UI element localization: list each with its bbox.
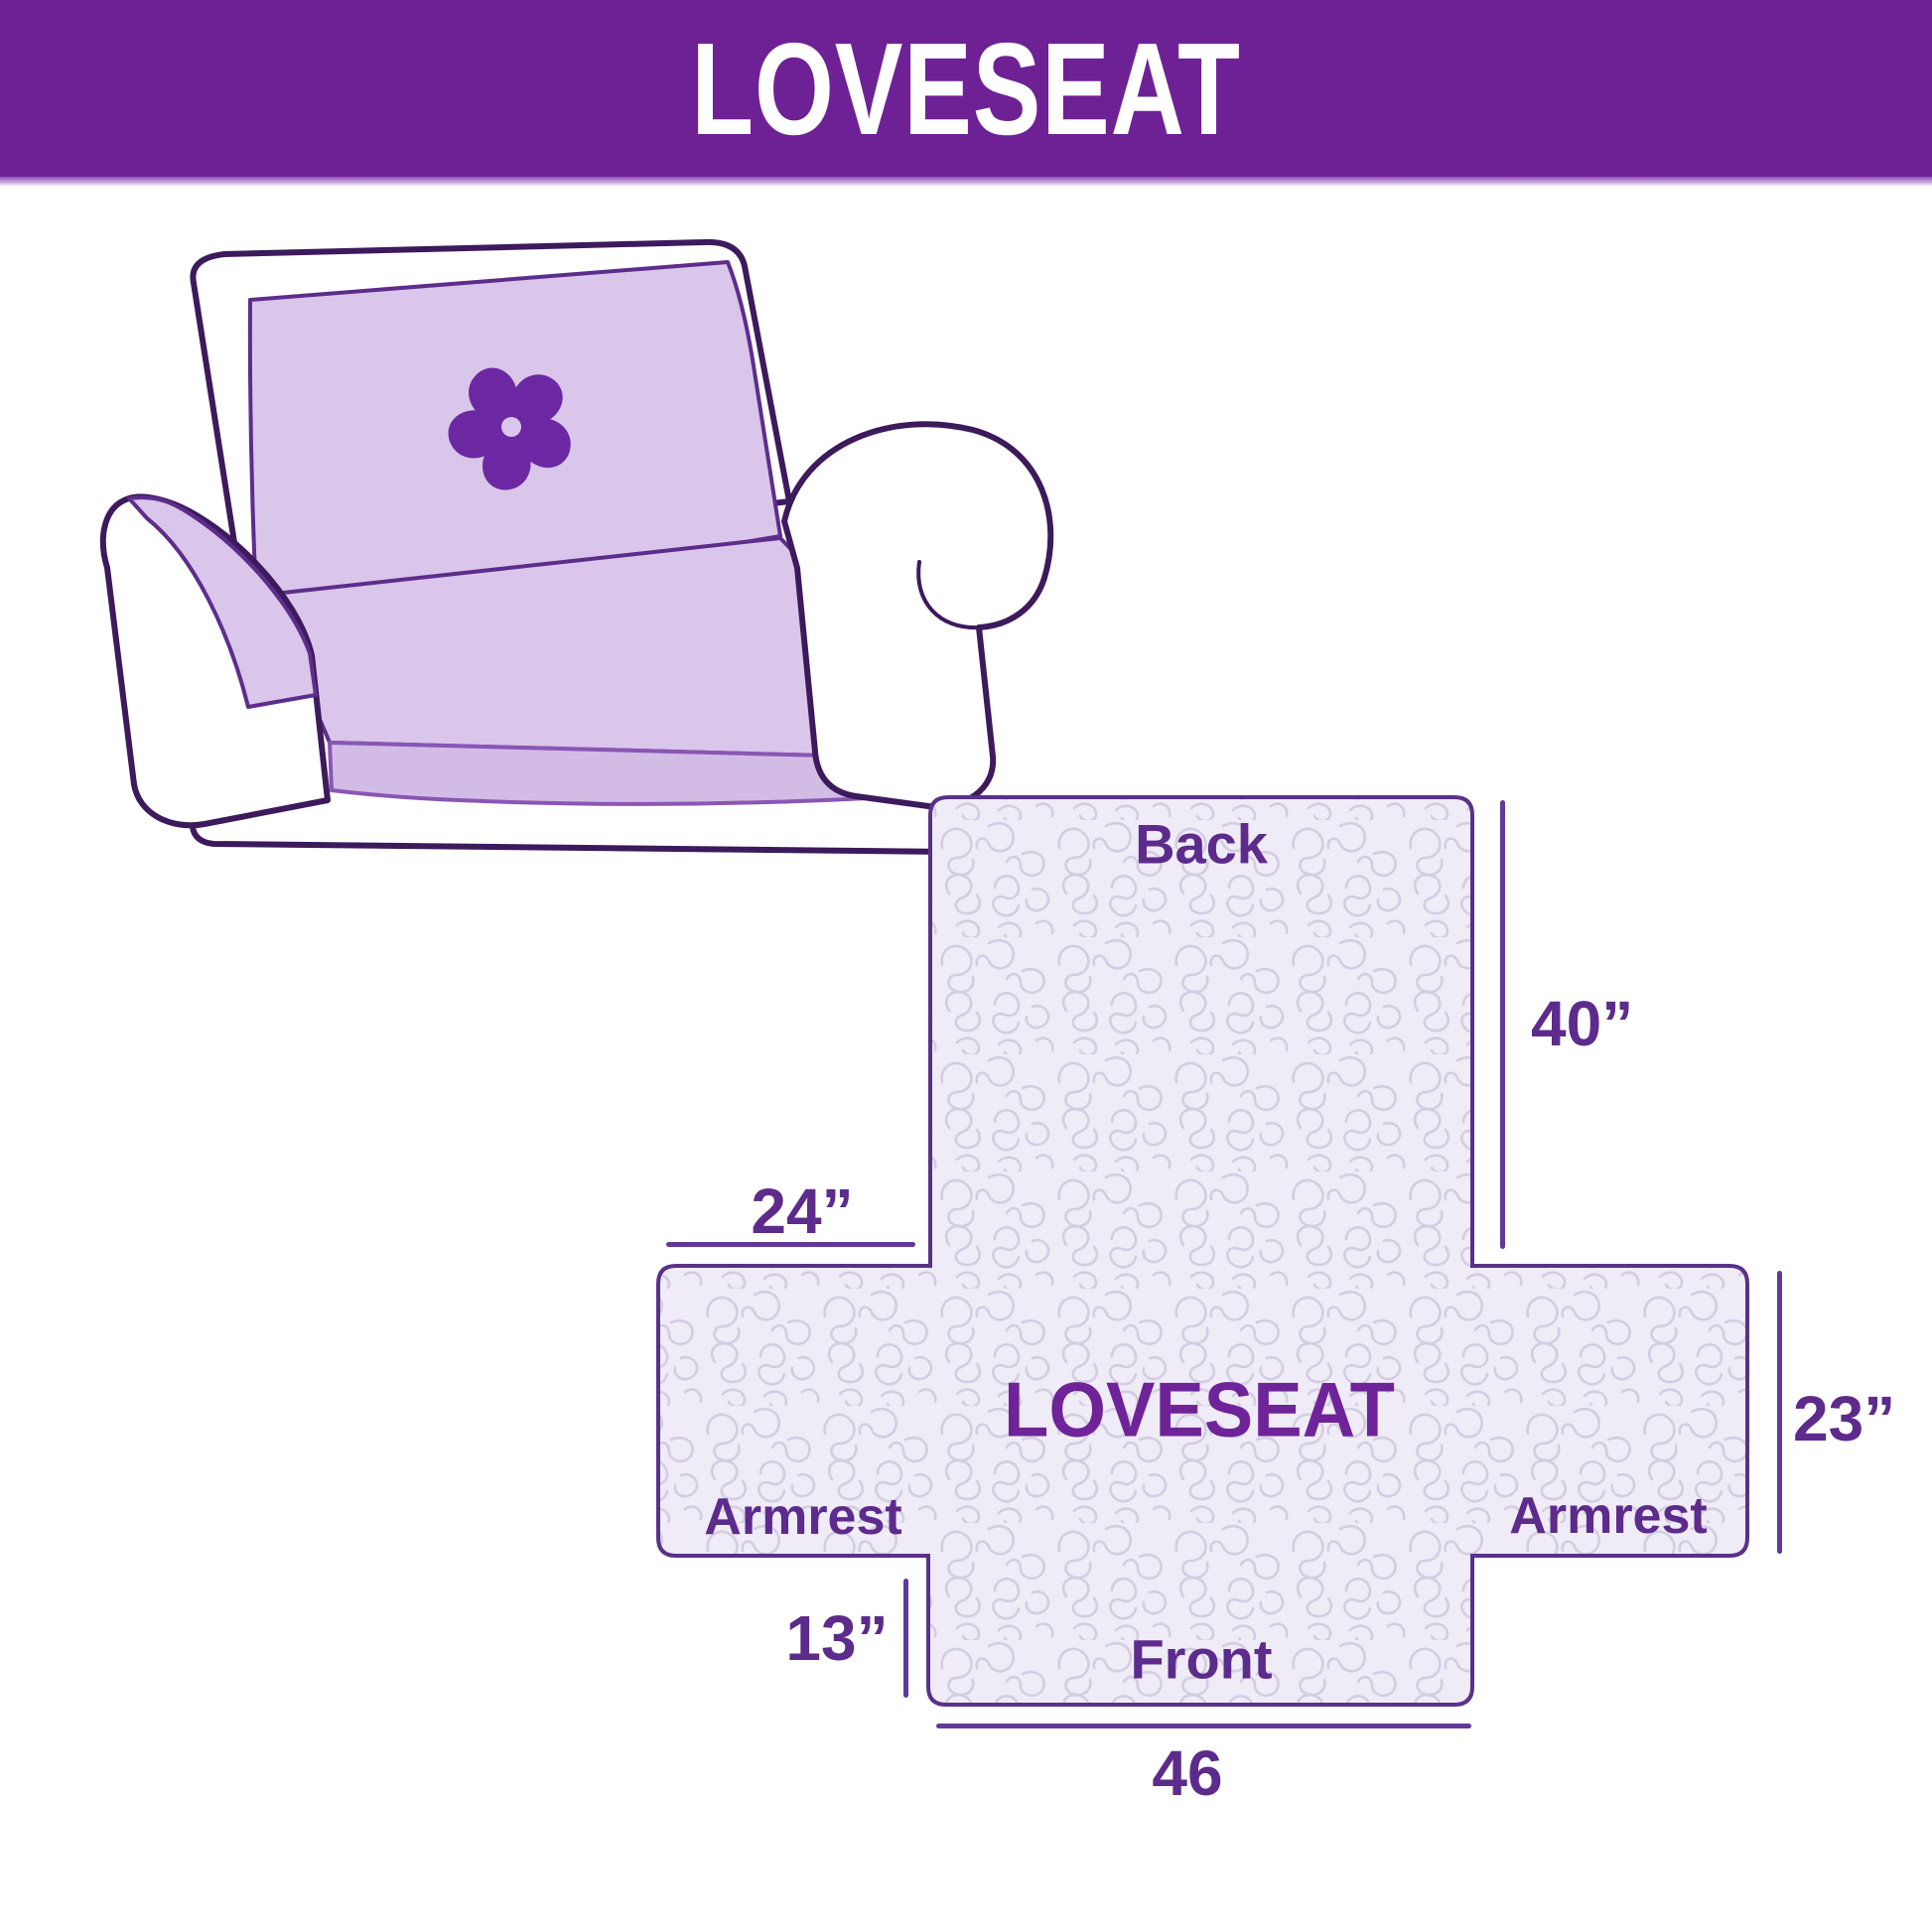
header-banner-strip (0, 177, 1932, 187)
armrest-right-label: Armrest (1509, 1486, 1707, 1546)
armrest-left-label: Armrest (704, 1487, 901, 1547)
cover-diagram-shape (658, 797, 1747, 1705)
dim-front-skirt-height: 13” (785, 1601, 888, 1675)
dim-armrest-height: 23” (1793, 1382, 1895, 1455)
scene-canvas (0, 0, 1932, 1932)
dim-back-height: 40” (1531, 987, 1633, 1060)
dim-line-armrest-height (1777, 1271, 1782, 1554)
sofa-right-arm (784, 424, 1050, 806)
dim-front-width: 46 (1152, 1736, 1222, 1810)
front-label: Front (1130, 1627, 1272, 1692)
center-label: LOVESEAT (1004, 1365, 1395, 1455)
dim-back-top-width: 24” (751, 1174, 853, 1248)
dim-line-back-height (1500, 800, 1505, 1249)
page-title: LOVESEAT (212, 0, 1720, 177)
dim-line-front-width (936, 1724, 1471, 1728)
back-label: Back (1135, 812, 1268, 877)
dim-line-front-skirt-height (903, 1579, 908, 1698)
sofa-illustration (103, 242, 1050, 852)
